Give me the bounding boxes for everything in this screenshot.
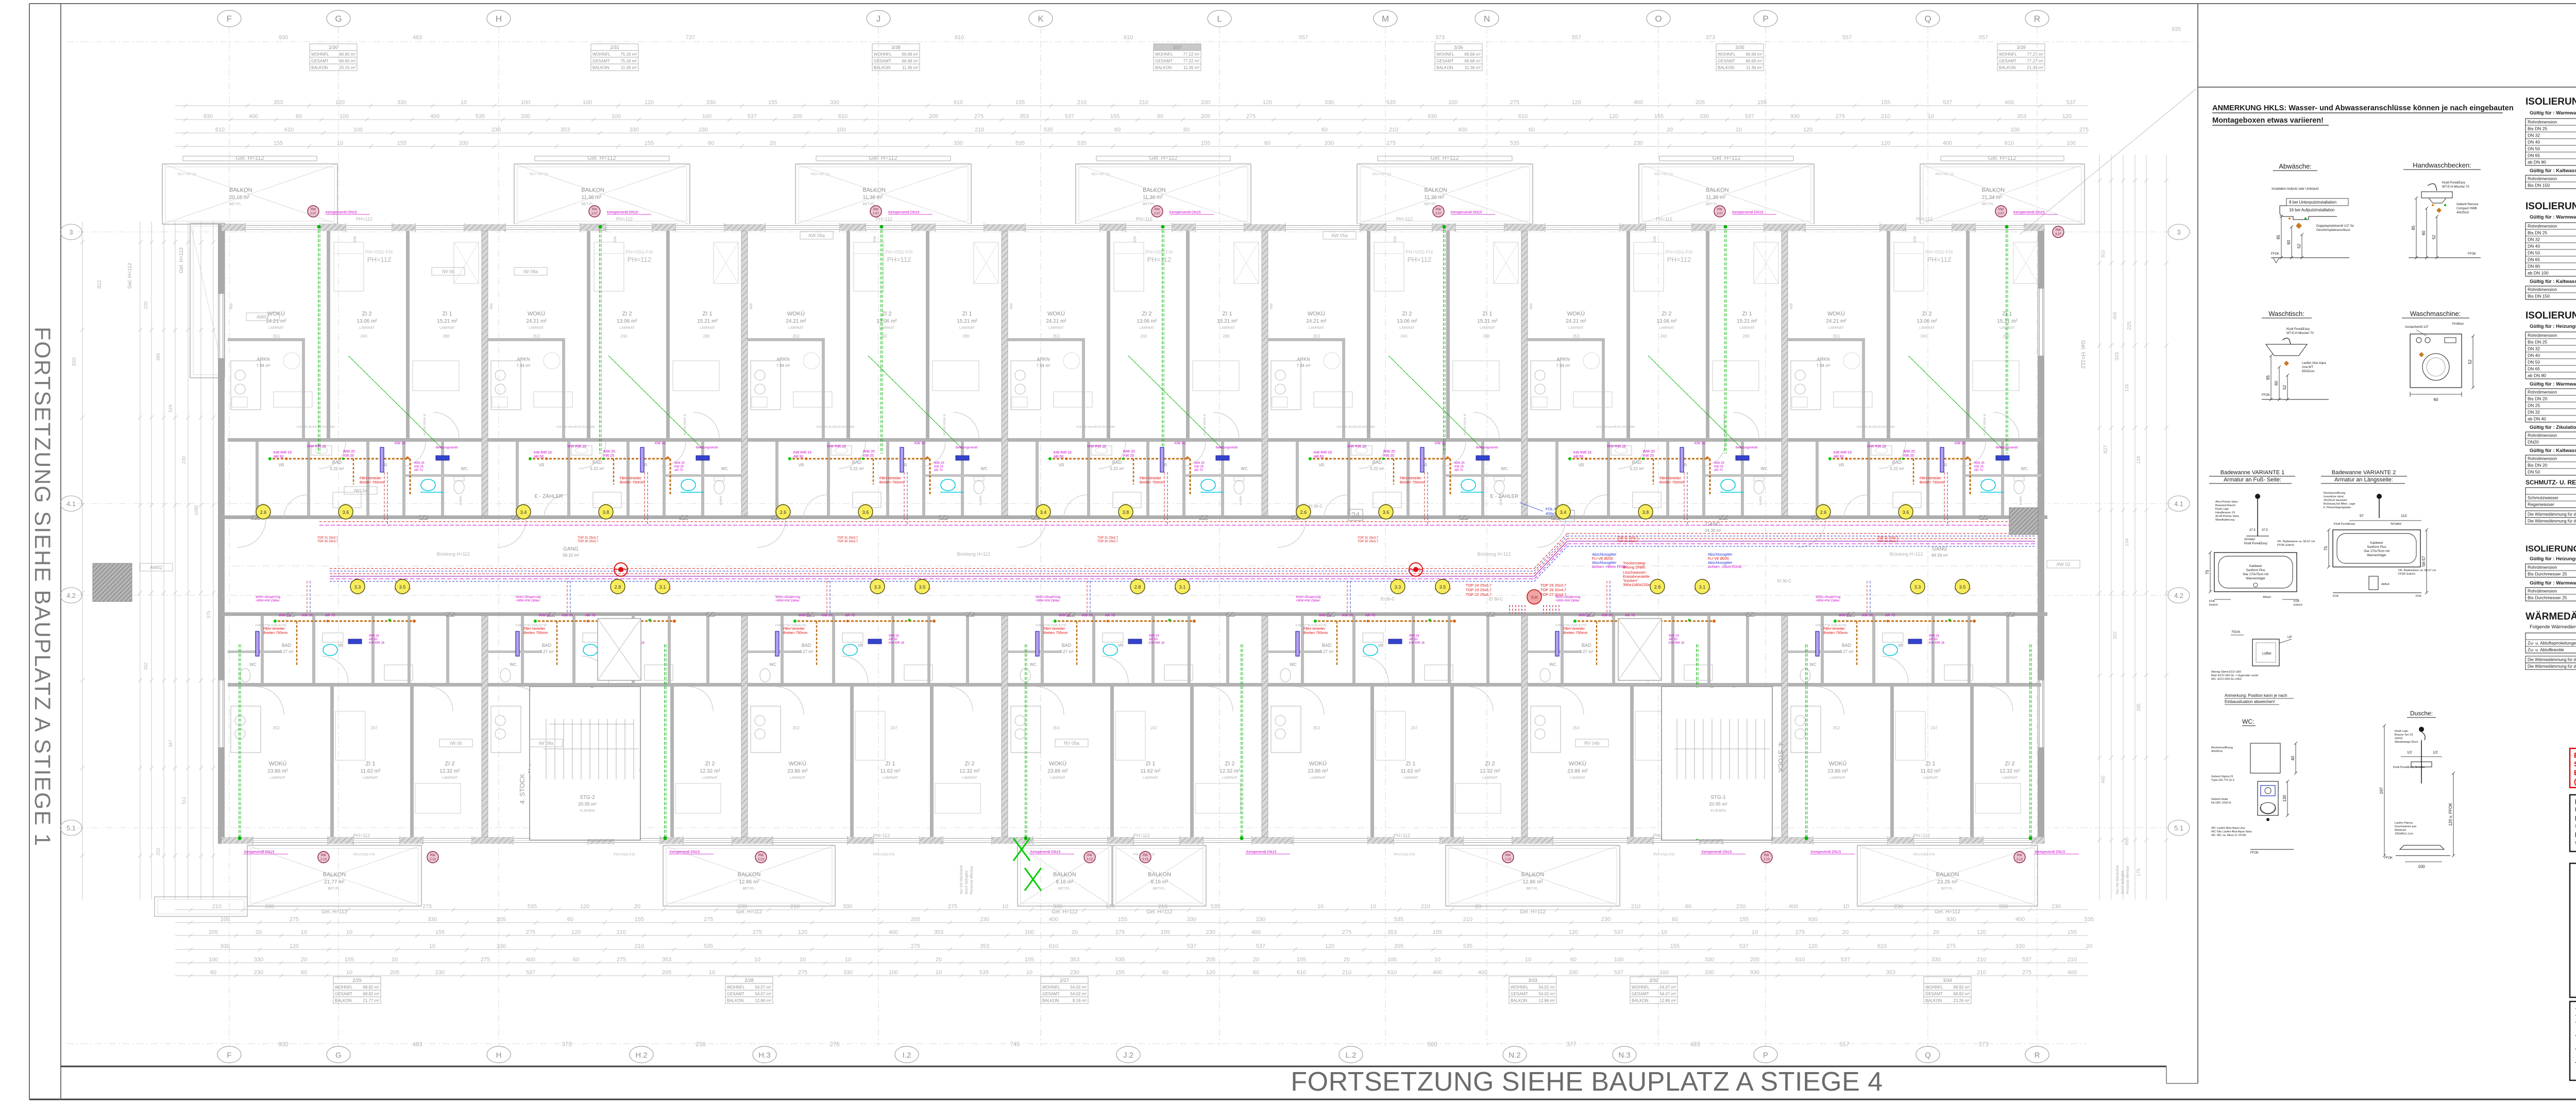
svg-text:ZI 2: ZI 2 [445, 761, 455, 767]
svg-text:KW 20: KW 20 [1694, 442, 1705, 445]
svg-text:100: 100 [583, 99, 592, 106]
svg-text:Die Wärmedämmung für die Müllr: Die Wärmedämmung für die Müllraumlüftung… [2528, 664, 2576, 669]
svg-text:330: 330 [1705, 957, 1714, 963]
svg-text:WOKÜ: WOKÜ [789, 761, 806, 767]
svg-text:RD=+67.13: RD=+67.13 [1936, 173, 1954, 176]
svg-text:12.32 m²: 12.32 m² [959, 768, 980, 774]
svg-text:Bis DN 25: Bis DN 25 [2528, 230, 2548, 236]
svg-text:610: 610 [1387, 970, 1397, 976]
svg-text:GESAMT: GESAMT [1999, 59, 2016, 63]
svg-text:20: 20 [256, 929, 262, 935]
svg-text:1080: 1080 [194, 505, 199, 515]
svg-text:275: 275 [1510, 99, 1519, 106]
svg-text:WW 25: WW 25 [414, 462, 425, 465]
svg-text:Rohrdimension: Rohrdimension [2528, 333, 2557, 338]
svg-text:11.36 m²: 11.36 m² [582, 195, 602, 200]
svg-text:205: 205 [1201, 113, 1210, 120]
svg-text:13.06 m²: 13.06 m² [617, 319, 637, 324]
svg-text:ZI 1: ZI 1 [1223, 311, 1232, 317]
svg-text:400: 400 [2015, 916, 2025, 923]
svg-text:H: H [496, 1051, 502, 1060]
svg-text:353: 353 [792, 334, 800, 339]
svg-text:610: 610 [955, 35, 964, 41]
svg-text:11.36 m²: 11.36 m² [1143, 195, 1163, 200]
svg-text:535: 535 [1463, 943, 1472, 949]
svg-text:WW RIR 16: WW RIR 16 [827, 445, 846, 448]
svg-text:IW 06: IW 06 [450, 741, 462, 746]
svg-text:537: 537 [2066, 99, 2076, 106]
svg-text:930: 930 [1946, 916, 1956, 923]
svg-text:Gel. H=112: Gel. H=112 [736, 909, 762, 915]
svg-text:BALKON: BALKON [1936, 872, 1959, 878]
svg-text:DN 32: DN 32 [2528, 346, 2540, 352]
svg-text:353: 353 [1053, 726, 1060, 730]
svg-text:DN20: DN20 [2528, 440, 2539, 445]
svg-text:Revisionsöffnung: Revisionsöffnung [2324, 492, 2345, 495]
svg-text:Rohrdimension: Rohrdimension [2528, 224, 2557, 229]
svg-text:KW 25: KW 25 [1974, 465, 1984, 469]
svg-text:2/29: 2/29 [352, 978, 362, 983]
svg-text:K/S t0/5 UK+FB DX KOB t0/t0: K/S t0/5 UK+FB DX KOB t0/t0 [1077, 426, 1115, 429]
svg-text:RD=+67.13: RD=+67.13 [1654, 173, 1673, 176]
svg-text:2.13: 2.13 [758, 858, 764, 861]
svg-text:BALKON: BALKON [1436, 65, 1453, 70]
svg-text:EI 30-C: EI 30-C [1777, 579, 1791, 583]
svg-text:66.68 m²: 66.68 m² [1745, 59, 1762, 63]
svg-text:537: 537 [1614, 929, 1623, 935]
svg-text:353: 353 [1020, 113, 1029, 120]
svg-text:UP: UP [2287, 636, 2292, 639]
svg-text:+WW+KW Zähler: +WW+KW Zähler [1036, 599, 1060, 603]
svg-text:100: 100 [2066, 140, 2076, 146]
svg-text:WW 25: WW 25 [799, 614, 810, 617]
svg-text:247: 247 [370, 726, 378, 730]
svg-text:BALKON: BALKON [1511, 998, 1528, 1003]
svg-text:285: 285 [2136, 704, 2141, 711]
svg-text:WOHNFL: WOHNFL [1042, 985, 1060, 990]
svg-text:330: 330 [1931, 957, 1941, 963]
svg-text:LAMINAT: LAMINAT [619, 326, 635, 330]
svg-text:280: 280 [1483, 334, 1490, 339]
svg-text:WC: WC [461, 466, 468, 471]
svg-text:WC: WC [1501, 466, 1508, 471]
svg-text:BAD: BAD [802, 643, 811, 648]
svg-text:FBH-Verteiler: FBH-Verteiler [1823, 627, 1845, 631]
svg-text:52: 52 [2468, 359, 2472, 364]
svg-text:155: 155 [1670, 943, 1680, 949]
svg-text:Gel. H=112: Gel. H=112 [321, 909, 348, 915]
svg-text:3.4: 3.4 [1560, 510, 1567, 515]
svg-text:Brause Set 1S: Brause Set 1S [2395, 733, 2413, 737]
svg-text:RD=+67.13: RD=+67.13 [530, 173, 548, 176]
svg-text:655: 655 [2124, 838, 2129, 845]
svg-text:I.2: I.2 [903, 1051, 911, 1060]
svg-text:275: 275 [1386, 140, 1396, 146]
svg-text:68.82 m²: 68.82 m² [1953, 985, 1970, 990]
svg-text:2.07: 2.07 [873, 212, 879, 215]
svg-text:Bad: ECO U60 GL + Hygrostat +y: Bad: ECO U60 GL + Hygrostat +ymst [2211, 674, 2259, 677]
svg-text:KW 25: KW 25 [302, 614, 313, 617]
svg-text:WT-E-H-Mischer 70: WT-E-H-Mischer 70 [2286, 332, 2314, 335]
svg-text:280: 280 [1223, 334, 1230, 339]
svg-text:BALKON: BALKON [1143, 187, 1166, 193]
svg-text:23.86 m²: 23.86 m² [1567, 768, 1588, 774]
svg-text:BALKON: BALKON [582, 187, 605, 193]
svg-text:11.36 m²: 11.36 m² [902, 65, 918, 70]
svg-text:Breiten 750mm: Breiten 750mm [523, 631, 548, 635]
svg-text:24.21 m²: 24.21 m² [786, 319, 806, 324]
svg-text:AR 50: AR 50 [1149, 638, 1158, 641]
svg-text:AR 70: AR 70 [325, 614, 335, 617]
svg-text:R: R [2034, 14, 2040, 24]
svg-text:AR 50: AR 50 [1054, 455, 1064, 459]
svg-text:15.21 m²: 15.21 m² [1737, 319, 1757, 324]
svg-text:WW 25: WW 25 [674, 462, 685, 465]
svg-text:3.8: 3.8 [1642, 510, 1649, 515]
svg-text:FOK: FOK [2209, 600, 2215, 603]
svg-text:N: N [1484, 14, 1490, 24]
svg-text:60: 60 [573, 957, 579, 963]
svg-text:100: 100 [612, 113, 621, 120]
svg-text:IW 08a: IW 08a [523, 269, 538, 274]
svg-text:3.8: 3.8 [1123, 510, 1129, 515]
svg-text:400: 400 [1049, 916, 1058, 923]
svg-text:ZI 2: ZI 2 [882, 311, 892, 317]
svg-text:Regenwasser: Regenwasser [2528, 502, 2554, 507]
svg-text:Kemperventil DN15: Kemperventil DN15 [326, 211, 357, 214]
svg-text:353: 353 [662, 957, 671, 963]
svg-text:275: 275 [1115, 929, 1125, 935]
svg-text:52: 52 [2282, 385, 2287, 390]
svg-text:85: 85 [2266, 375, 2270, 380]
svg-text:ZI 1: ZI 1 [443, 311, 452, 317]
svg-text:WC: WC [1549, 662, 1556, 667]
svg-text:280: 280 [703, 334, 710, 339]
svg-text:ab DN 80: ab DN 80 [2528, 160, 2546, 165]
svg-text:205: 205 [1394, 943, 1403, 949]
svg-text:3.5: 3.5 [1959, 584, 1966, 590]
svg-text:BALKON: BALKON [1521, 872, 1545, 878]
svg-text:210: 210 [1977, 957, 1986, 963]
svg-text:WOKÜ: WOKÜ [1308, 311, 1325, 317]
svg-text:373: 373 [1978, 1042, 1988, 1048]
svg-text:400: 400 [249, 113, 258, 120]
svg-text:leitung DN80: leitung DN80 [1623, 565, 1645, 570]
svg-text:AUBSK: AUBSK [979, 495, 982, 505]
svg-text:BET.PL.: BET.PL. [1526, 887, 1539, 891]
svg-text:Breiten 750mm: Breiten 750mm [263, 631, 288, 635]
svg-text:AR 70: AR 70 [1365, 614, 1376, 617]
svg-text:KW 20: KW 20 [1435, 442, 1446, 445]
svg-text:275: 275 [704, 916, 713, 923]
svg-text:BALKON: BALKON [1148, 872, 1171, 878]
svg-text:AR 50: AR 50 [1669, 638, 1677, 641]
svg-text:ZI 2: ZI 2 [1485, 761, 1495, 767]
svg-text:353: 353 [1070, 957, 1079, 963]
svg-text:Achse= +90cm FFOK: Achse= +90cm FFOK [1592, 565, 1627, 569]
svg-text:120: 120 [335, 99, 345, 106]
svg-text:RW: RW [2017, 854, 2022, 857]
svg-text:535: 535 [1015, 140, 1025, 146]
svg-text:DN 40: DN 40 [2528, 140, 2540, 145]
svg-text:LAMINAT: LAMINAT [1919, 326, 1935, 330]
svg-text:Gültig für : Kaltwasserleitung: Gültig für : Kaltwasserleitungen [2530, 168, 2576, 174]
svg-text:PH=VSG-FIX: PH=VSG-FIX [1405, 249, 1433, 255]
svg-text:330: 330 [830, 99, 839, 106]
svg-text:AW02: AW02 [150, 565, 162, 570]
svg-text:12.86 m²: 12.86 m² [1522, 879, 1543, 885]
svg-text:WÄRMEDÄMMUNG LÜFTUNG: WÄRMEDÄMMUNG LÜFTUNG [2526, 611, 2576, 622]
svg-text:238: 238 [696, 1042, 705, 1048]
svg-text:FBH-Verteiler: FBH-Verteiler [620, 477, 642, 480]
svg-text:KW 25: KW 25 [1454, 465, 1464, 469]
svg-text:Doppelspindelventil 1/2'' für: Doppelspindelventil 1/2'' für [2316, 225, 2354, 228]
svg-text:Rohrdimension: Rohrdimension [2528, 120, 2557, 125]
svg-text:DN 25: DN 25 [2528, 403, 2540, 408]
svg-text:275: 275 [526, 929, 535, 935]
svg-text:23.86 m²: 23.86 m² [787, 768, 808, 774]
svg-text:KW 25: KW 25 [1383, 454, 1394, 458]
svg-text:7.94 m²: 7.94 m² [516, 363, 530, 368]
svg-text:LAMINAT: LAMINAT [442, 776, 458, 780]
svg-text:GANG: GANG [1705, 522, 1721, 527]
svg-text:LAMINAT: LAMINAT [1568, 326, 1584, 330]
svg-text:ZI 1: ZI 1 [886, 761, 895, 767]
svg-text:ISOLIERUNG - KELLERGESCHOSS: ISOLIERUNG - KELLERGESCHOSS [2526, 201, 2576, 212]
svg-text:BALKON: BALKON [1982, 187, 2005, 193]
svg-text:353: 353 [1886, 970, 1895, 976]
svg-text:230: 230 [980, 916, 989, 923]
svg-text:2.07: 2.07 [310, 212, 316, 215]
svg-text:535: 535 [1044, 127, 1053, 133]
svg-text:ACHSE RDUK t5: ACHSE RDUK t5 [684, 414, 687, 436]
svg-text:Gel. H=112: Gel. H=112 [1146, 909, 1173, 915]
svg-text:PH=112: PH=112 [1394, 833, 1410, 838]
svg-text:2.07: 2.07 [591, 212, 598, 215]
svg-text:3.1: 3.1 [1699, 584, 1706, 590]
svg-text:100: 100 [702, 113, 711, 120]
svg-text:Kempeventil DN15: Kempeventil DN15 [1811, 850, 1841, 854]
svg-text:ZI 2: ZI 2 [1142, 311, 1152, 317]
svg-text:400: 400 [1433, 970, 1442, 976]
svg-text:10: 10 [392, 957, 398, 963]
svg-text:3.6: 3.6 [862, 510, 869, 515]
svg-text:330: 330 [1201, 99, 1210, 106]
svg-text:205: 205 [497, 916, 506, 923]
svg-text:Breite= 750mm: Breite= 750mm [1400, 481, 1425, 484]
svg-text:535: 535 [704, 943, 713, 949]
svg-text:Waschtisch:: Waschtisch: [2268, 310, 2304, 317]
svg-text:353: 353 [1833, 726, 1840, 730]
svg-text:VR: VR [798, 463, 804, 467]
svg-text:66.68 m²: 66.68 m² [902, 52, 918, 57]
svg-text:KW 25: KW 25 [1862, 614, 1873, 617]
svg-text:68.82 m²: 68.82 m² [1953, 992, 1970, 996]
svg-text:60: 60 [296, 113, 302, 120]
svg-text:Personal öffenbar: Personal öffenbar [970, 865, 974, 894]
svg-text:Folgende Wärmedämmungen: Folgende Wärmedämmungen [2530, 624, 2576, 630]
svg-text:230: 230 [1256, 916, 1265, 923]
svg-text:WW 25: WW 25 [1974, 462, 1985, 465]
svg-text:13.06 m²: 13.06 m² [1656, 319, 1677, 324]
svg-text:KW 25: KW 25 [822, 614, 833, 617]
svg-text:GANG: GANG [1932, 546, 1947, 552]
svg-text:Einbausituation abweichen!: Einbausituation abweichen! [2225, 699, 2275, 704]
svg-text:100: 100 [1614, 957, 1623, 963]
svg-text:343: 343 [2114, 352, 2120, 361]
svg-text:Kludi Pure&Easy: Kludi Pure&Easy [2334, 523, 2355, 526]
svg-text:353: 353 [792, 726, 800, 730]
svg-text:11.36 m²: 11.36 m² [863, 195, 883, 200]
svg-text:KW 25: KW 25 [1194, 465, 1204, 469]
svg-text:10: 10 [1370, 904, 1376, 910]
svg-text:BET.PL.: BET.PL. [1425, 203, 1437, 206]
svg-text:220: 220 [143, 302, 148, 309]
svg-text:PH=VSG-FIX: PH=VSG-FIX [1913, 853, 1935, 857]
svg-text:353: 353 [273, 726, 280, 730]
svg-text:10: 10 [1317, 904, 1324, 910]
svg-text:100: 100 [521, 99, 530, 106]
svg-text:930: 930 [221, 943, 230, 949]
svg-text:400: 400 [430, 113, 439, 120]
svg-text:10: 10 [1525, 957, 1531, 963]
svg-text:120: 120 [1263, 99, 1272, 106]
svg-text:120: 120 [1572, 99, 1581, 106]
svg-text:240: 240 [1920, 334, 1927, 339]
svg-text:40: 40 [2291, 756, 2295, 760]
svg-text:FFOK Estrich: FFOK Estrich [2398, 573, 2415, 576]
svg-text:455: 455 [2112, 312, 2117, 320]
svg-text:57: 57 [2360, 514, 2364, 518]
svg-text:WW 25: WW 25 [1319, 614, 1331, 617]
svg-text:280: 280 [443, 334, 450, 339]
svg-text:23.86 m²: 23.86 m² [1047, 768, 1068, 774]
svg-text:BALKON: BALKON [874, 65, 891, 70]
svg-text:WC: WC [1029, 662, 1037, 667]
svg-text:155: 155 [2067, 929, 2077, 935]
svg-text:KW 25: KW 25 [1903, 454, 1914, 458]
svg-text:KW 25: KW 25 [1342, 614, 1353, 617]
svg-text:ANMERKUNG HKLS: Wasser- und Ab: ANMERKUNG HKLS: Wasser- und Abwasseransc… [2212, 104, 2514, 112]
svg-text:AUBSK: AUBSK [1240, 495, 1243, 505]
svg-text:5.22 m²: 5.22 m² [1370, 466, 1384, 471]
svg-text:537: 537 [1256, 943, 1265, 949]
svg-text:ARKN: ARKN [517, 357, 530, 362]
svg-text:10: 10 [1026, 970, 1032, 976]
svg-text:FBH-Verteiler: FBH-Verteiler [1563, 627, 1585, 631]
svg-text:930: 930 [204, 113, 213, 120]
svg-text:60: 60 [210, 970, 216, 976]
svg-text:WOKÜ: WOKÜ [269, 761, 286, 767]
svg-text:AR 70: AR 70 [414, 469, 423, 472]
svg-text:Wohn.Absperrung: Wohn.Absperrung [1296, 596, 1320, 599]
svg-text:668: 668 [1790, 303, 1793, 309]
svg-text:Kemperventil DN15: Kemperventil DN15 [1732, 211, 1764, 214]
svg-text:75: 75 [2205, 570, 2210, 574]
svg-text:Gel. H=112: Gel. H=112 [1520, 909, 1546, 915]
svg-text:60: 60 [708, 140, 714, 146]
svg-text:TOP 22 25x3,7: TOP 22 25x3,7 [1466, 592, 1492, 597]
svg-text:8.16 m²: 8.16 m² [1151, 879, 1169, 885]
svg-text:FBH-Verteiler: FBH-Verteiler [783, 627, 805, 631]
svg-text:12.32 m²: 12.32 m² [1999, 768, 2020, 774]
svg-text:Wandstange 60cm: Wandstange 60cm [2395, 741, 2418, 744]
svg-text:AR 50: AR 50 [1834, 455, 1844, 459]
svg-text:WOHNFL: WOHNFL [727, 985, 745, 990]
svg-text:535: 535 [1115, 957, 1125, 963]
svg-text:Breiten 750mm: Breiten 750mm [1303, 631, 1328, 635]
svg-text:20.95 m²: 20.95 m² [578, 801, 597, 807]
svg-text:Wohn.Absperrung: Wohn.Absperrung [1555, 596, 1580, 599]
svg-text:WC: WC [980, 466, 988, 471]
svg-text:lt. Fliesenlegungsplan: lt. Fliesenlegungsplan [2324, 506, 2351, 509]
svg-text:Lüfter: Lüfter [2262, 652, 2272, 656]
svg-text:WOKÜ: WOKÜ [1567, 311, 1585, 317]
svg-text:Una WT: Una WT [2302, 366, 2313, 369]
svg-text:BAD: BAD [1322, 643, 1332, 648]
svg-text:537: 537 [1841, 957, 1850, 963]
svg-text:Kempeventil DN15: Kempeventil DN15 [244, 850, 274, 854]
svg-text:ZI 1: ZI 1 [1742, 311, 1752, 317]
svg-text:12.86 m²: 12.86 m² [739, 879, 759, 885]
svg-text:120: 120 [1609, 113, 1618, 120]
svg-text:STG-2: STG-2 [580, 795, 595, 800]
svg-text:Kludi Logo: Kludi Logo [2215, 508, 2229, 511]
svg-text:LAMINAT: LAMINAT [1570, 776, 1586, 780]
svg-text:WOKÜ: WOKÜ [1049, 761, 1066, 767]
svg-text:ZI 2: ZI 2 [622, 311, 632, 317]
svg-text:VR: VR [1578, 463, 1584, 467]
svg-text:120: 120 [1881, 140, 1890, 146]
svg-text:WW 20: WW 20 [1643, 450, 1655, 454]
svg-text:10: 10 [709, 970, 715, 976]
svg-text:230: 230 [2052, 904, 2061, 910]
svg-text:5.22 m²: 5.22 m² [1630, 466, 1643, 471]
svg-text:BET.PL.: BET.PL. [1058, 887, 1071, 891]
svg-text:11.36 m²: 11.36 m² [1183, 65, 1199, 70]
svg-text:538: 538 [1653, 236, 1657, 242]
svg-text:Bekittungsventil: Bekittungsventil [1996, 446, 2018, 449]
svg-text:Innenliche mind.: Innenliche mind. [2324, 495, 2345, 498]
svg-text:Abschlussgitter: Abschlussgitter [1592, 561, 1617, 565]
svg-text:BALKON: BALKON [1718, 65, 1735, 70]
svg-text:GESAMT: GESAMT [1925, 992, 1943, 996]
svg-text:PH=112: PH=112 [616, 216, 633, 222]
svg-text:20.15 m²: 20.15 m² [229, 195, 250, 200]
svg-text:20: 20 [936, 957, 942, 963]
svg-text:AW 02: AW 02 [2057, 562, 2071, 567]
svg-text:BALKON: BALKON [1042, 998, 1059, 1003]
svg-text:WC Laufen Alva Aqua Una: WC Laufen Alva Aqua Una [2211, 827, 2245, 830]
svg-text:RD=+67.13: RD=+67.13 [178, 173, 196, 176]
svg-text:3/38: 3/38 [891, 45, 901, 50]
svg-text:GESAMT: GESAMT [311, 59, 329, 63]
svg-text:DN 32: DN 32 [2528, 410, 2540, 415]
svg-text:TOP 30 25x3,7: TOP 30 25x3,7 [578, 540, 599, 543]
svg-text:3.3: 3.3 [1395, 584, 1401, 590]
svg-text:230: 230 [492, 127, 501, 133]
svg-text:155: 155 [345, 957, 354, 963]
svg-text:535: 535 [1077, 140, 1087, 146]
svg-text:400: 400 [2005, 99, 2014, 106]
svg-text:FBH-Verteiler: FBH-Verteiler [1043, 627, 1065, 631]
svg-text:TOP 23 25x3,7: TOP 23 25x3,7 [1466, 588, 1492, 592]
svg-text:Kemperventil DN15: Kemperventil DN15 [888, 211, 920, 214]
svg-text:WOHNFL: WOHNFL [1925, 985, 1943, 990]
svg-text:WOHNFL: WOHNFL [592, 52, 611, 57]
svg-text:247: 247 [1150, 726, 1158, 730]
svg-text:STG-1: STG-1 [1710, 795, 1726, 800]
